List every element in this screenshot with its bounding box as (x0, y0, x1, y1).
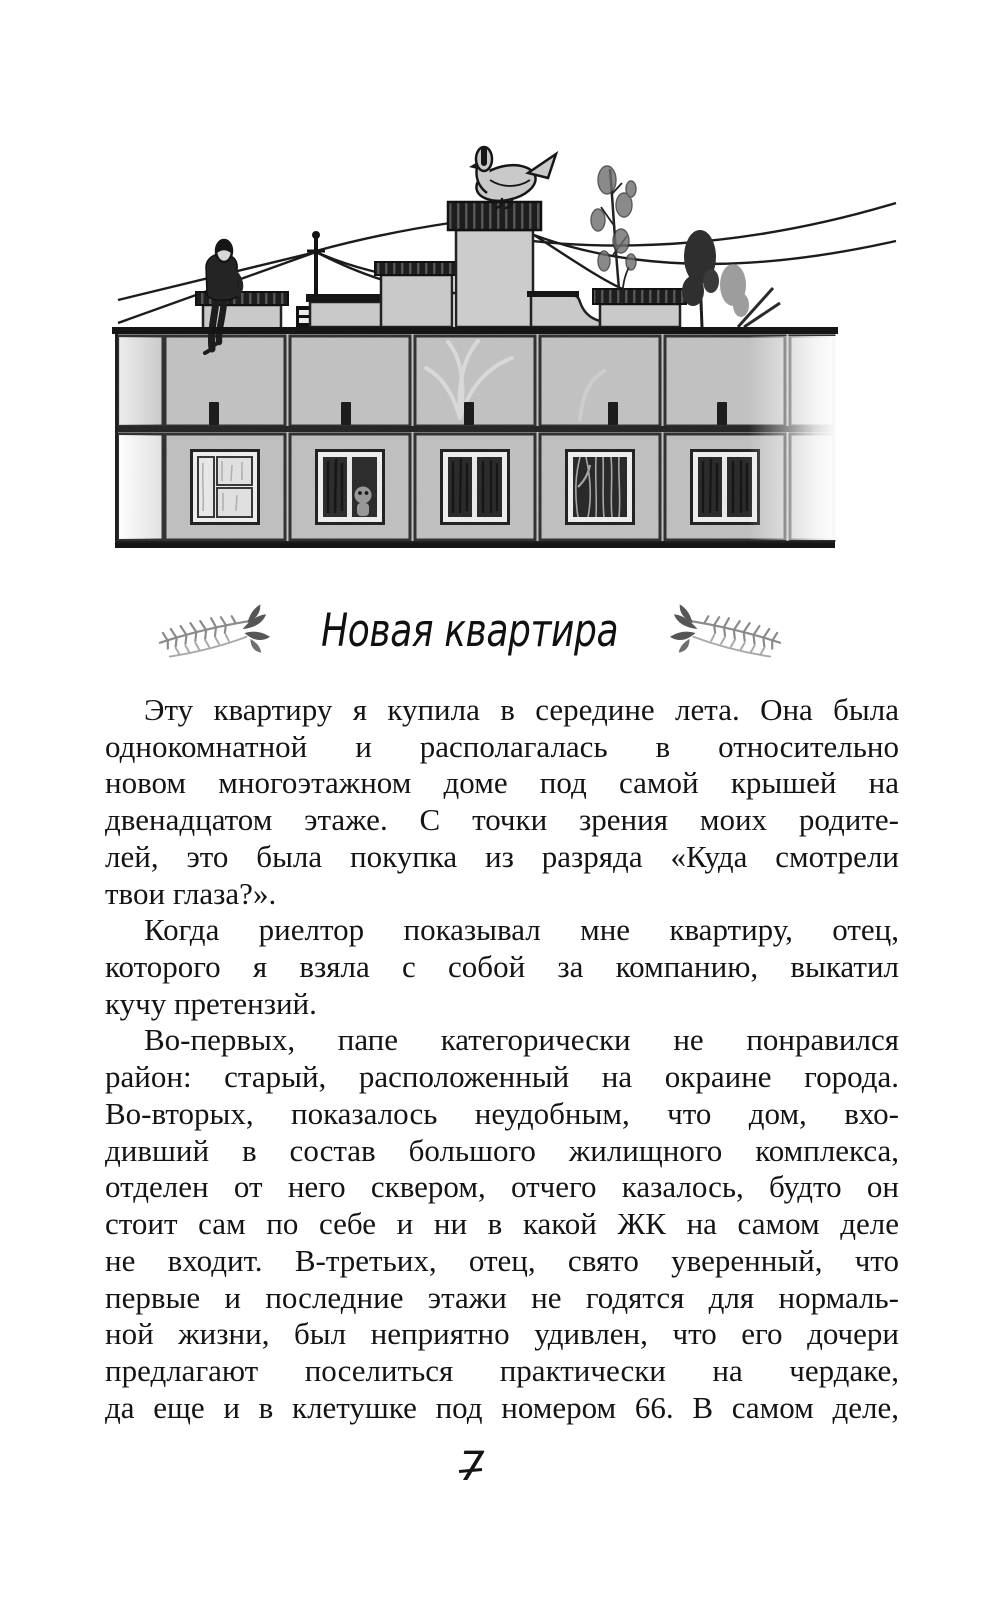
text-line: ной жизни, был неприятно удивлен, что ег… (105, 1316, 899, 1353)
fern-ornament-left (156, 599, 274, 661)
book-page: { "page": { "number": "7", "chapter_titl… (0, 0, 1000, 1616)
chimney-cap (448, 202, 541, 230)
text-line: твои глаза?». (105, 876, 899, 913)
text-line: да еще и в клетушке под номером 66. В са… (105, 1390, 899, 1427)
curved-structure (531, 295, 600, 327)
fern-ornament-right (666, 599, 784, 661)
mid-box-roof (375, 262, 458, 275)
pigeon (469, 147, 556, 208)
text-line: новом многоэтажном доме под самой крышей… (105, 765, 899, 802)
roof-structures (196, 202, 686, 329)
text-line: Во-вторых, показалось неудобным, что дом… (105, 1096, 899, 1133)
text-line: лей, это была покупка из разряда «Куда с… (105, 839, 899, 876)
chapter-header: Новая квартира (70, 594, 870, 666)
text-line: однокомнатной и располагалась в относите… (105, 729, 899, 766)
text-line: Когда риелтор показывал мне квартиру, от… (105, 912, 899, 949)
text-line: кучу претензий. (105, 986, 899, 1023)
low-box-roof (306, 294, 386, 302)
text-line: двенадцатом этаже. С точки зрения моих р… (105, 802, 899, 839)
left-border (115, 334, 118, 543)
text-line: отделен от него сквером, отчего казалось… (105, 1169, 899, 1206)
curved-structure-top (527, 291, 579, 297)
text-line: дивший в состав большого жилищного компл… (105, 1133, 899, 1170)
planter-roof (593, 289, 686, 304)
text-line: район: старый, расположенный на окраине … (105, 1059, 899, 1096)
page-number-digit: 7 (459, 1444, 484, 1490)
roof-line (112, 327, 838, 334)
low-box (310, 302, 382, 327)
pigeon-beak (469, 163, 477, 169)
chimney (456, 230, 533, 327)
left-fade-upper (119, 337, 163, 425)
text-line: которого я взяла с собой за компанию, вы… (105, 949, 899, 986)
pigeon-tail (528, 154, 556, 178)
text-line: Во-первых, папе категорически не понрави… (105, 1022, 899, 1059)
text-line: стоит сам по себе и ни в какой ЖК на сам… (105, 1206, 899, 1243)
grain-texture (115, 334, 835, 543)
right-fade (748, 336, 840, 540)
gray-bush (720, 264, 749, 317)
page-number: 7 (75, 1444, 869, 1490)
chapter-title: Новая квартира (321, 604, 618, 657)
text-line: предлагают поселиться практически на чер… (105, 1353, 899, 1390)
mid-box (381, 275, 452, 327)
text-line: первые и последние этажи не годятся для … (105, 1280, 899, 1317)
dark-tree (682, 230, 719, 327)
left-fade (119, 435, 163, 539)
text-line: не входит. В-третьих, отец, свято уверен… (105, 1243, 899, 1280)
rooftop-illustration (110, 135, 900, 555)
building-facade (115, 334, 840, 548)
text-line: Эту квартиру я купила в середине лета. О… (105, 692, 899, 729)
planter-box (600, 304, 680, 327)
body-text: Эту квартиру я купила в середине лета. О… (105, 692, 899, 1426)
